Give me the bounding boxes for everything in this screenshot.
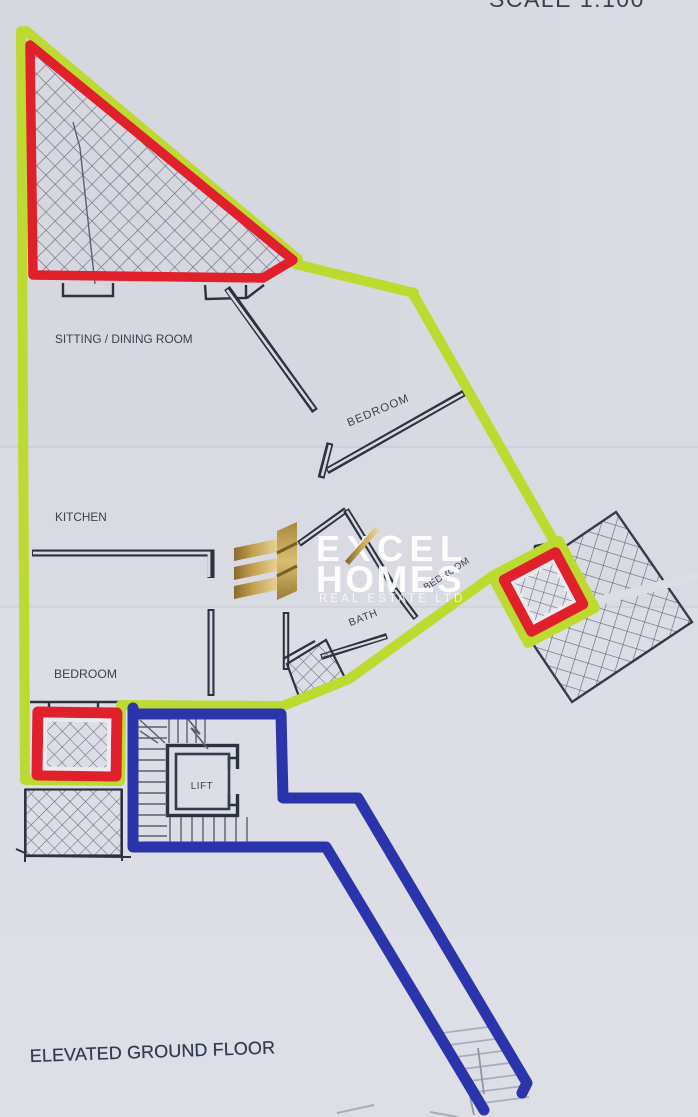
svg-text:SITTING / DINING ROOM: SITTING / DINING ROOM	[55, 332, 193, 346]
svg-text:KITCHEN: KITCHEN	[55, 510, 107, 524]
svg-text:SCALE 1:100: SCALE 1:100	[489, 0, 645, 12]
svg-text:REAL ESTATE LTD: REAL ESTATE LTD	[319, 593, 465, 605]
svg-text:BEDROOM: BEDROOM	[54, 667, 117, 681]
svg-text:LIFT: LIFT	[191, 781, 214, 792]
